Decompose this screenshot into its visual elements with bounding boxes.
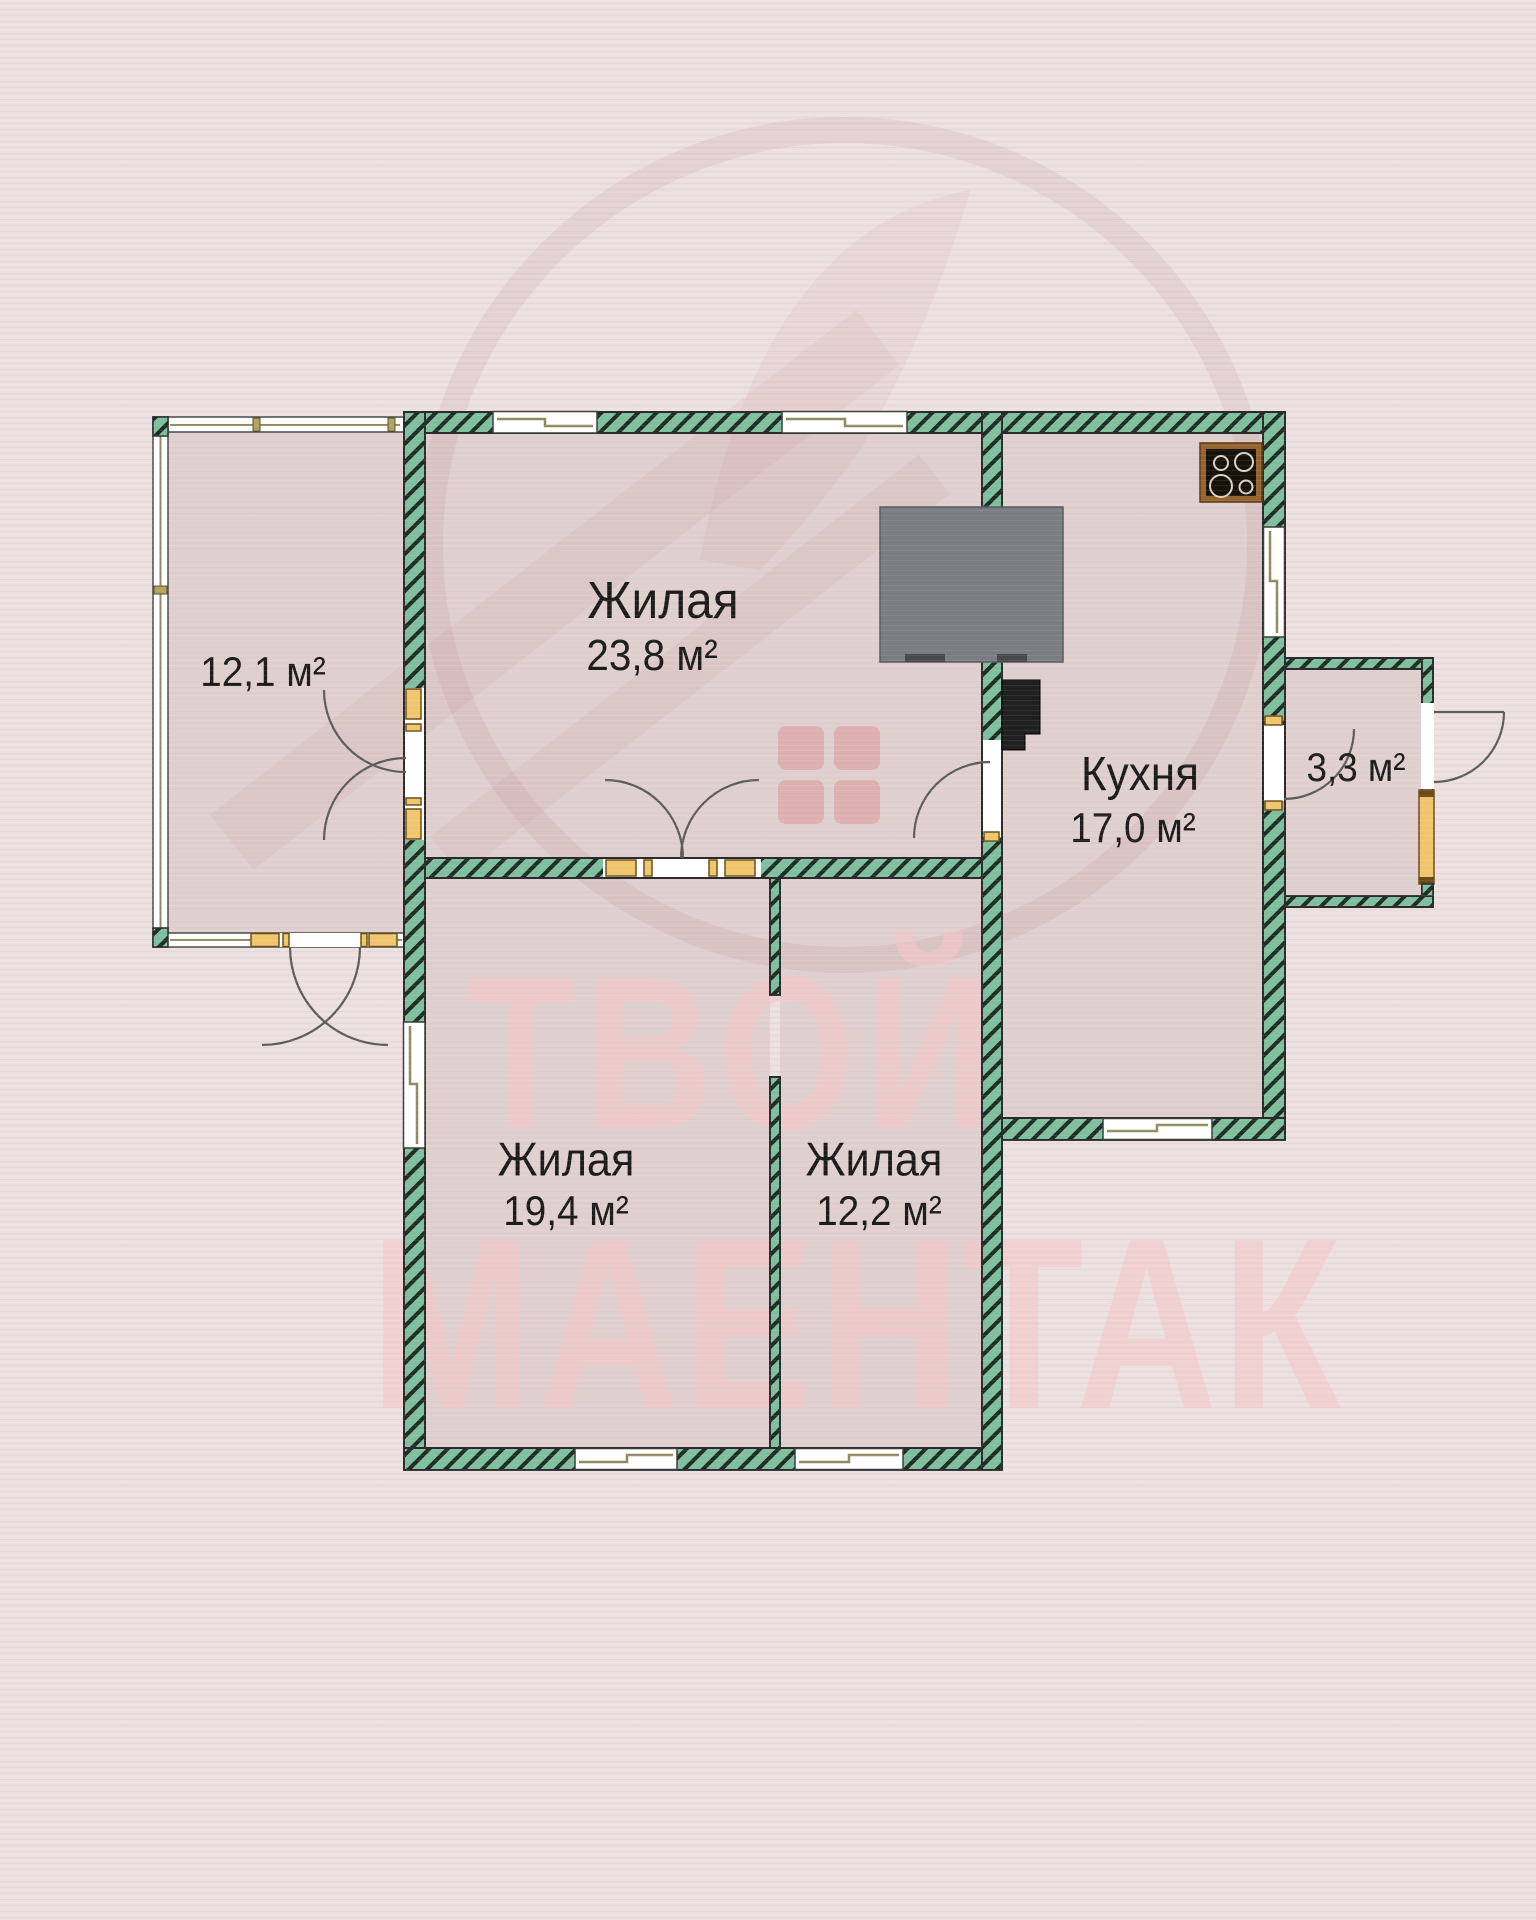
annex-exit-door-arc	[1434, 712, 1504, 782]
living-mid-area: 12,2 м²	[816, 1190, 941, 1232]
veranda-area: 12,1 м²	[200, 651, 325, 693]
floor-plan-page: ТВОЙ МАЕНТАК	[0, 0, 1536, 1920]
annex-wall-bottom	[1285, 896, 1433, 907]
wall-partition-upper	[770, 878, 780, 995]
kitchen-area: 17,0 м²	[1070, 807, 1195, 849]
wall-bottom	[404, 1448, 1002, 1470]
veranda-exit-door-arc-left	[262, 947, 360, 1045]
annex-wall-top	[1285, 658, 1433, 669]
living-left-area: 19,4 м²	[503, 1190, 628, 1232]
living-left-name: Жилая	[498, 1136, 635, 1183]
living-top-name: Жилая	[587, 575, 738, 627]
opening-kitchen-annex	[1264, 725, 1284, 801]
opening-living-kitchen	[983, 740, 1001, 837]
kitchen-name: Кухня	[1081, 751, 1199, 799]
veranda-exit-door-arc-right	[290, 947, 388, 1045]
annex-area: 3,3 м²	[1307, 748, 1406, 788]
cooktop-icon	[1200, 443, 1262, 502]
living-top-area: 23,8 м²	[586, 634, 717, 678]
wall-left	[404, 412, 425, 1470]
stove-icon	[880, 507, 1063, 662]
annex-window	[1419, 790, 1434, 896]
wall-partition-lower	[770, 1077, 780, 1448]
living-mid-name: Жилая	[806, 1136, 943, 1183]
floor-plan-canvas: ТВОЙ МАЕНТАК	[0, 0, 1536, 1920]
opening-annex-exit	[1421, 703, 1434, 789]
